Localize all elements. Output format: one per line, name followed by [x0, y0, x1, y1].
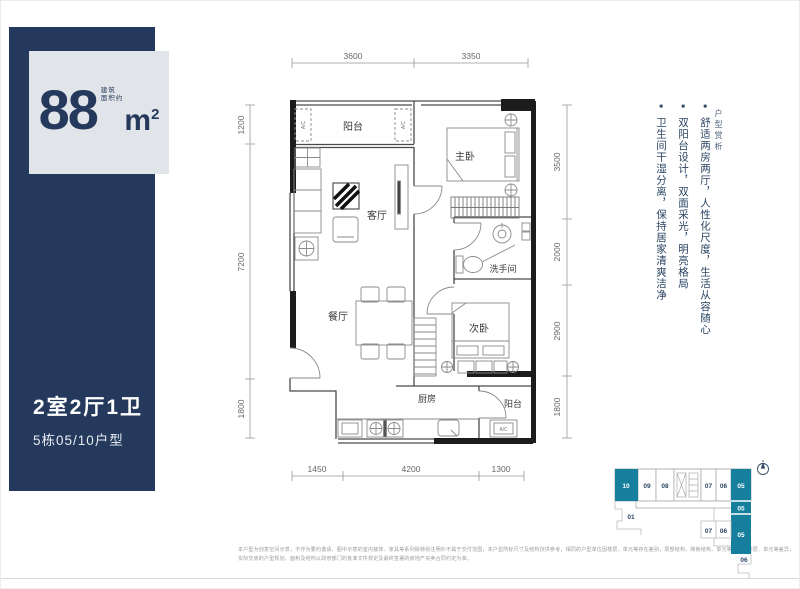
dining-furniture: [356, 287, 436, 376]
dim-bottom-2: 4200: [402, 464, 421, 474]
dim-left-2: 7200: [236, 252, 246, 271]
room-label-second-bedroom: 次卧: [469, 322, 489, 335]
ac-label-2: A/C: [401, 120, 407, 129]
dimension-left: [245, 105, 255, 438]
bullet-icon: ■: [658, 104, 664, 111]
ac-label-1: A/C: [301, 120, 307, 129]
room-label-bathroom: 洗手间: [489, 263, 516, 274]
area-value: 88: [39, 87, 97, 133]
bullet-icon: ■: [702, 104, 708, 111]
area-note-line1: 建筑: [101, 87, 124, 95]
area-superscript: 2: [151, 106, 159, 123]
dim-top-2: 3350: [462, 51, 481, 61]
highlight-bullet-1: ■舒适两房两厅，人性化尺度，生活从容随心: [698, 104, 713, 394]
dim-right-2: 2000: [552, 242, 562, 261]
keyplan-unit-07: 07: [705, 483, 713, 490]
dim-top-1: 3600: [344, 51, 363, 61]
area-note-line2: 面积约: [101, 95, 124, 103]
dimension-top: [292, 58, 528, 68]
kitchen-fixtures: [336, 419, 479, 437]
floor-plan-page: 88 建筑 面积约 m2 2室2厅1卫 5栋05/10户型 3600 3350 …: [0, 0, 800, 589]
keyplan-mid-06: 06: [720, 528, 728, 535]
room-label-balcony-bottom: 阳台: [504, 398, 522, 409]
keyplan-unit-09: 09: [643, 483, 651, 490]
keyplan-unit-05b: 05: [737, 506, 745, 513]
dim-left-1: 1200: [236, 115, 246, 134]
dimension-right: [562, 105, 572, 438]
keyplan-unit-05c: 05: [737, 532, 745, 539]
dim-right-3: 2900: [552, 321, 562, 340]
page-bottom-divider: [1, 578, 800, 579]
room-label-living-room: 客厅: [367, 209, 387, 222]
compass-icon: [758, 460, 769, 475]
left-info-panel: 88 建筑 面积约 m2 2室2厅1卫 5栋05/10户型: [9, 27, 155, 491]
area-line: 88 建筑 面积约 m2: [29, 87, 169, 133]
bullet-icon: ■: [680, 104, 686, 111]
keyplan-step-outlines: [615, 501, 751, 579]
area-badge: 88 建筑 面积约 m2: [29, 51, 169, 174]
dim-right-4: 1800: [552, 397, 562, 416]
dim-left-3: 1800: [236, 399, 246, 418]
ac-label-3: A/C: [499, 427, 508, 433]
keyplan-unit-06: 06: [720, 483, 728, 490]
keyplan-unit-01: 01: [627, 514, 635, 521]
living-room-art: [333, 183, 359, 209]
dim-bottom-3: 1300: [492, 464, 511, 474]
area-unit: m2: [124, 109, 159, 133]
area-note: 建筑 面积约: [101, 87, 124, 103]
room-label-dining-room: 餐厅: [328, 310, 348, 323]
dim-right-1: 3500: [552, 152, 562, 171]
highlight-bullet-2: ■双阳台设计，双面采光，明亮格局: [676, 104, 691, 394]
wardrobe: [451, 197, 519, 218]
dim-bottom-1: 1450: [308, 464, 327, 474]
keyplan-unit-08: 08: [661, 483, 669, 490]
keyplan-unit-05a: 05: [737, 483, 745, 490]
keyplan-bottom-06: 06: [740, 557, 748, 564]
keyplan-mid-07: 07: [705, 528, 713, 535]
highlight-bullet-3: ■卫生间干湿分离，保持居家清爽洁净: [654, 104, 669, 394]
room-label-balcony-top: 阳台: [343, 120, 363, 133]
key-plan-svg: 10 09 08 07 06 05 05 05 07 06 01 06: [606, 456, 781, 581]
highlights-block: ■舒适两房两厅，人性化尺度，生活从容随心 ■双阳台设计，双面采光，明亮格局 ■卫…: [647, 104, 713, 394]
highlights-section-label: 户型赏析: [713, 109, 724, 153]
second-bed: [442, 303, 519, 373]
room-label-kitchen: 厨房: [418, 393, 436, 404]
unit-subtitle: 5栋05/10户型: [33, 429, 124, 449]
room-label-master-bedroom: 主卧: [455, 150, 475, 163]
floor-plan-svg: 3600 3350 1200 7200 1800 3500 2000 2900 …: [226, 39, 596, 489]
layout-title: 2室2厅1卫: [33, 391, 143, 421]
keyplan-unit-10: 10: [622, 483, 630, 490]
